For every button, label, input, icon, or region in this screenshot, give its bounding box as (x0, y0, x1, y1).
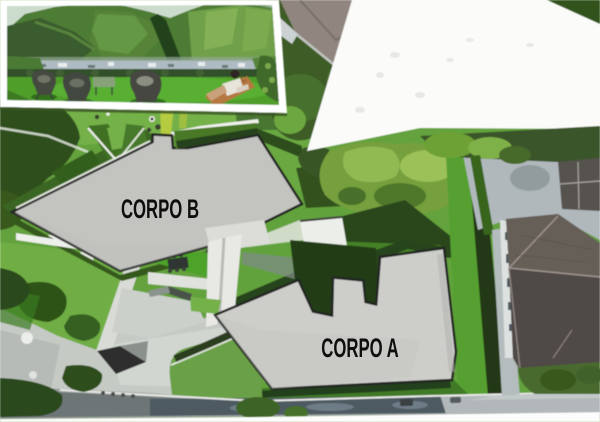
svg-text:CORPO A: CORPO A (321, 333, 398, 363)
svg-text:CORPO B: CORPO B (121, 194, 199, 224)
